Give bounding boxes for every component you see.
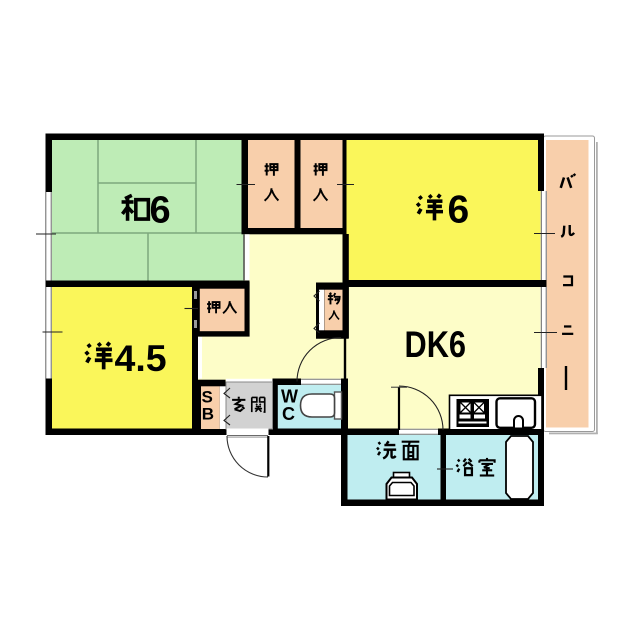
svg-text:B: B — [202, 404, 214, 423]
svg-text:6: 6 — [150, 190, 171, 232]
svg-text:6: 6 — [448, 189, 470, 232]
svg-text:DK6: DK6 — [405, 323, 467, 365]
svg-text:4.5: 4.5 — [115, 337, 167, 379]
svg-text:C: C — [282, 404, 295, 424]
